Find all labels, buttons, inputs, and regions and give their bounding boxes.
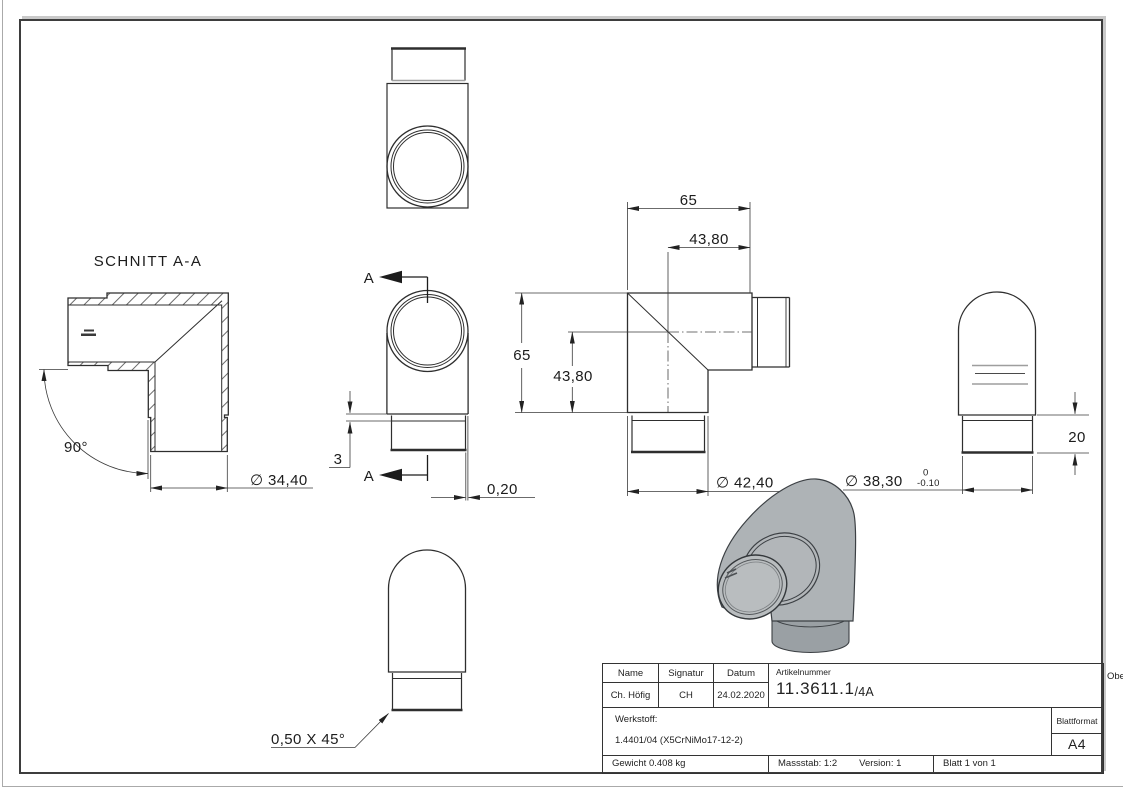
end-dome-outline (959, 292, 1036, 415)
top-bore-inner (394, 133, 462, 201)
werkstoff-label: Werkstoff: (615, 714, 657, 725)
front-view: A A 3 0,20 (329, 270, 535, 501)
cut-arrow-top (379, 271, 402, 283)
header-datum: Datum (714, 664, 769, 683)
blattformat-value: A4 (1052, 734, 1102, 756)
back-spigot (392, 673, 463, 710)
value-datum: 24.02.2020 (714, 683, 769, 708)
back-dome-outline (389, 550, 466, 672)
top-bore-mid (391, 130, 464, 203)
width-4380-dimension: 43,80 (689, 231, 729, 248)
artikelnummer-label: Artikelnummer (776, 667, 831, 677)
profile-right-spigot (752, 298, 790, 368)
massstab-cell: Massstab: 1:2 Version: 1 (769, 756, 934, 773)
value-name: Ch. Höfig (603, 683, 659, 708)
section-stamp-mark (81, 330, 96, 337)
value-signatur: CH (659, 683, 714, 708)
diameter-42-dimension: ∅ 42,40 (716, 475, 774, 492)
section-cavity (68, 305, 222, 452)
artikelnummer-value: 11.3611.1/4A (776, 679, 874, 699)
header-signatur: Signatur (659, 664, 714, 683)
version-text: Version: 1 (859, 758, 901, 769)
cut-label-top: A (364, 270, 374, 287)
height-4380-dimension: 43,80 (553, 368, 593, 385)
oberflaeche-label: Oberfläche: (1107, 671, 1123, 682)
back-view: 0,50 X 45° (271, 550, 466, 748)
title-block: Name Signatur Datum Ch. Höfig CH 24.02.2… (602, 663, 1104, 774)
werkstoff-value: 1.4401/04 (X5CrNiMo17-12-2) (615, 735, 743, 746)
header-name: Name (603, 664, 659, 683)
drawing-sheet: SCHNITT A-A 90° ∅ 34,40 (0, 0, 1123, 794)
section-miter-line (155, 301, 222, 362)
angle-dimension: 90° (64, 439, 88, 456)
offset-3-dimension: 3 (334, 451, 343, 468)
width-65-dimension: 65 (680, 192, 698, 209)
oberflaeche-text: Oberfläche: Geschliffen Korn 240 (1107, 671, 1123, 682)
top-view (387, 49, 468, 209)
section-view: SCHNITT A-A 90° ∅ 34,40 (39, 253, 313, 492)
artikelnummer-cell: Artikelnummer 11.3611.1/4A Oberfläche: G… (769, 664, 1102, 708)
massstab-text: Massstab: 1:2 (778, 758, 837, 769)
top-spigot (392, 49, 465, 81)
height-65-dimension: 65 (513, 347, 531, 364)
blattformat-label: Blattformat (1052, 708, 1102, 734)
blatt-text: Blatt 1 von 1 (934, 756, 1102, 773)
diameter-38-dimension: ∅ 38,30 (845, 473, 903, 490)
tolerance-upper: 0 (923, 468, 928, 479)
cut-arrow-bottom (379, 469, 402, 481)
length-20-dimension: 20 (1068, 429, 1086, 446)
section-title: SCHNITT A-A (94, 253, 202, 270)
diameter-34-dimension: ∅ 34,40 (250, 472, 308, 489)
cut-label-bottom: A (364, 468, 374, 485)
front-spigot (391, 416, 467, 451)
end-view: 20 ∅ 38,30 0 -0.10 (843, 292, 1089, 494)
render-3d (707, 479, 856, 653)
profile-bottom-spigot (631, 416, 706, 453)
artikelnummer-number: 11.3611.1 (776, 679, 855, 698)
gap-020-dimension: 0,20 (487, 481, 518, 498)
top-bore-outer (387, 126, 468, 207)
werkstoff-cell: Werkstoff: 1.4401/04 (X5CrNiMo17-12-2) (603, 708, 1052, 756)
end-spigot (962, 416, 1034, 453)
artikelnummer-suffix: /4A (855, 685, 874, 699)
profile-view: 65 43,80 65 43,80 ∅ 42,40 (513, 192, 789, 496)
gewicht-text: Gewicht 0.408 kg (603, 756, 769, 773)
chamfer-dimension: 0,50 X 45° (271, 731, 345, 748)
front-bore-mid (391, 295, 464, 368)
tolerance-lower: -0.10 (917, 478, 940, 489)
front-bore-inner (394, 297, 462, 365)
